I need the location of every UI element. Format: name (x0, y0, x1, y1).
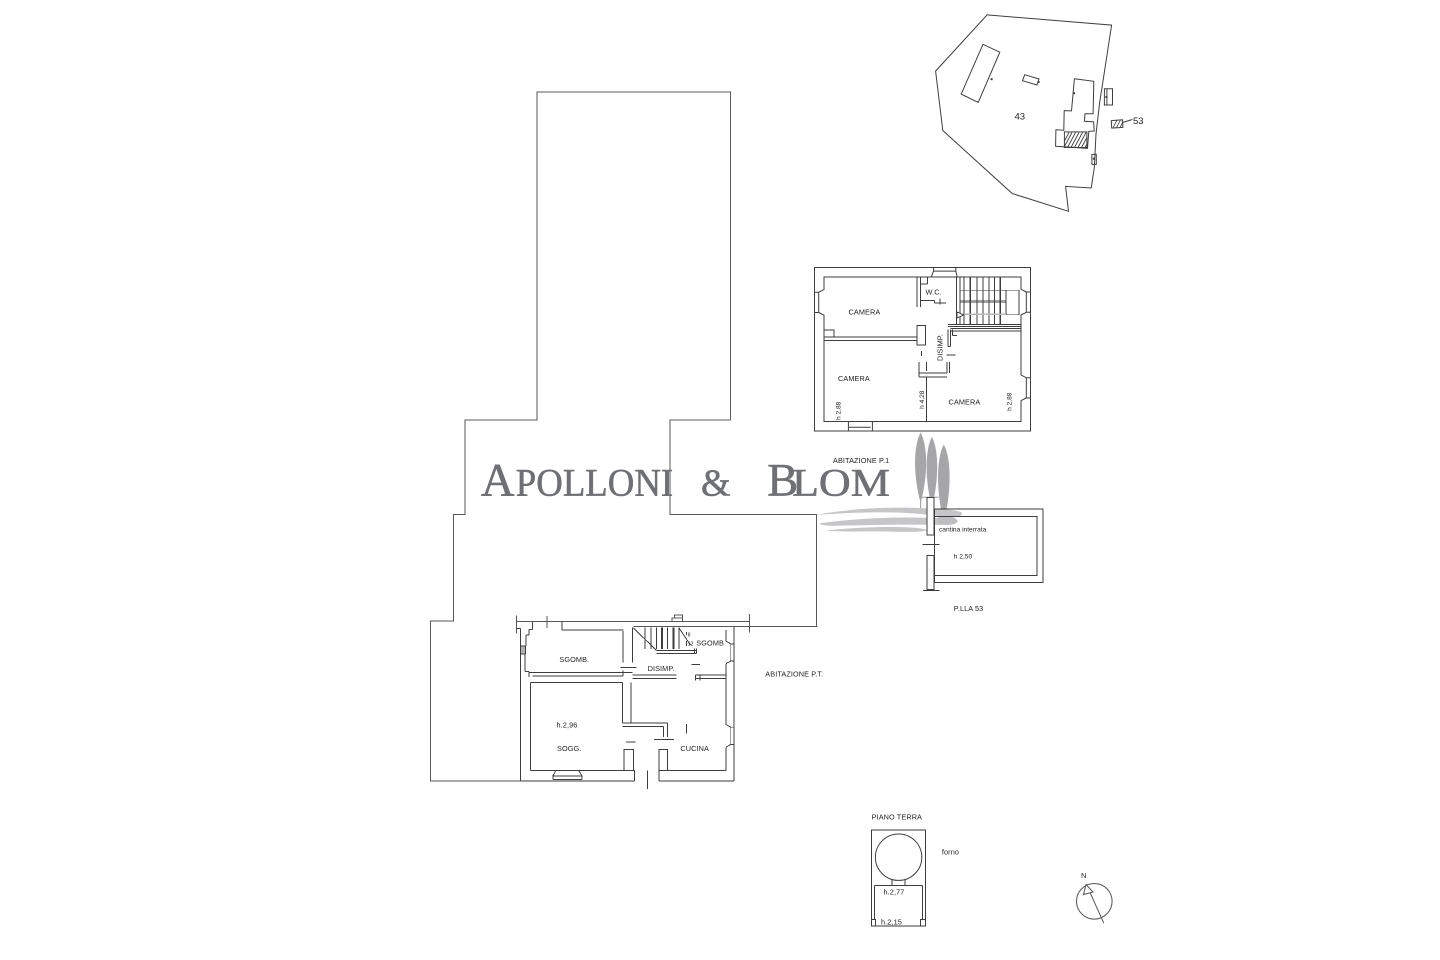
svg-text:CUCINA: CUCINA (680, 744, 709, 753)
svg-text:SOGG.: SOGG. (557, 744, 581, 753)
svg-text:DISIMP.: DISIMP. (936, 334, 945, 361)
svg-text:LOM: LOM (792, 461, 890, 505)
svg-text:53: 53 (1133, 116, 1144, 127)
svg-text:PIANO TERRA: PIANO TERRA (872, 813, 922, 822)
svg-text:&: & (701, 463, 731, 505)
svg-text:A: A (481, 456, 515, 507)
svg-text:SGOMB.: SGOMB. (559, 655, 589, 664)
svg-text:ABITAZIONE P.T.: ABITAZIONE P.T. (765, 670, 823, 679)
svg-text:h 4,28: h 4,28 (919, 390, 926, 409)
svg-text:CAMERA: CAMERA (838, 374, 870, 383)
svg-text:forno: forno (942, 848, 959, 857)
svg-text:h.2,15: h.2,15 (881, 918, 902, 927)
svg-text:8: 8 (688, 633, 691, 639)
svg-text:DISIMP.: DISIMP. (648, 664, 675, 673)
svg-text:h 2,88: h 2,88 (1006, 392, 1013, 411)
svg-text:h.2,96: h.2,96 (557, 721, 578, 730)
svg-text:h 2,50: h 2,50 (954, 554, 973, 561)
svg-text:SGOMB: SGOMB (696, 638, 724, 647)
svg-text:43: 43 (1015, 112, 1026, 123)
svg-text:CAMERA: CAMERA (849, 308, 881, 317)
svg-text:h.2,77: h.2,77 (884, 888, 905, 897)
svg-text:CAMERA: CAMERA (949, 398, 981, 407)
svg-text:POLLONI: POLLONI (516, 461, 673, 505)
svg-text:ABITAZIONE P.1: ABITAZIONE P.1 (833, 456, 889, 465)
svg-text:h 2,88: h 2,88 (836, 401, 843, 420)
svg-text:N: N (1081, 871, 1086, 880)
svg-text:cantina interrata: cantina interrata (939, 527, 987, 534)
svg-text:P.LLA 53: P.LLA 53 (954, 604, 983, 613)
svg-text:W.C.: W.C. (926, 287, 942, 296)
svg-text:12: 12 (688, 642, 694, 648)
